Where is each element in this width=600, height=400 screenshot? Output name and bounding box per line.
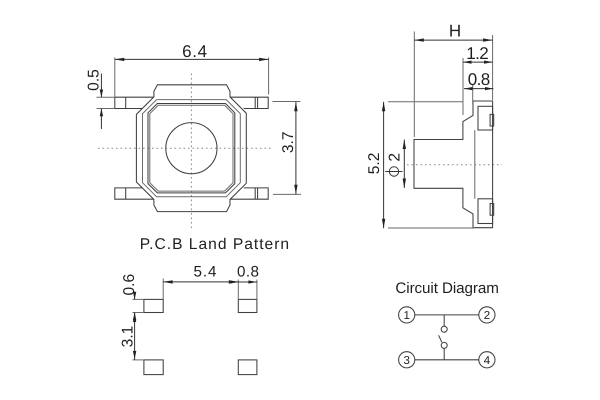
svg-text:0.8: 0.8: [237, 264, 259, 281]
svg-text:6.4: 6.4: [182, 42, 207, 61]
svg-text:H: H: [449, 21, 461, 40]
svg-text:1: 1: [403, 310, 409, 322]
svg-text:3: 3: [403, 355, 409, 367]
svg-text:4: 4: [484, 355, 491, 367]
svg-text:5.2: 5.2: [366, 153, 383, 175]
svg-text:0.5: 0.5: [86, 69, 103, 91]
svg-text:Circuit Diagram: Circuit Diagram: [395, 280, 499, 297]
svg-text:P.C.B Land Pattern: P.C.B Land Pattern: [140, 236, 289, 253]
svg-text:2: 2: [387, 153, 404, 162]
svg-text:1.2: 1.2: [466, 44, 489, 63]
svg-text:5.4: 5.4: [194, 264, 217, 281]
svg-text:3.7: 3.7: [280, 131, 297, 153]
svg-text:2: 2: [484, 310, 490, 322]
svg-text:0.8: 0.8: [468, 70, 491, 89]
svg-text:3.1: 3.1: [120, 326, 137, 348]
